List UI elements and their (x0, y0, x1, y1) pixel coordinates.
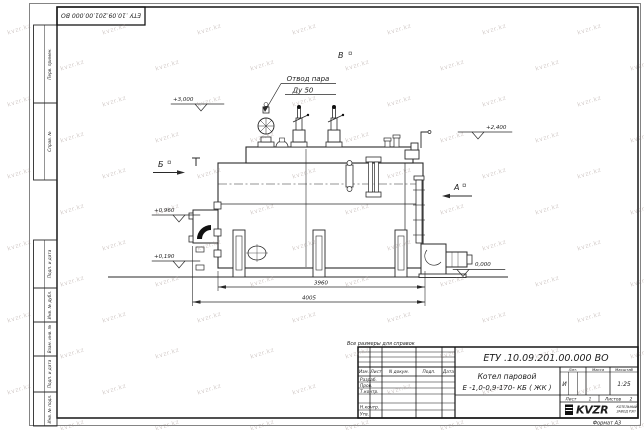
tb-row-prov: Пров. (360, 383, 373, 389)
tb-designation: ЕТУ .10.09.201.00.000 ВО (483, 353, 609, 364)
elev-0190-text: +0,190 (154, 254, 175, 260)
format-label: Формат А3 (593, 421, 621, 427)
field-inv-podl: Инв. № подл. (47, 395, 52, 424)
dim-3960-text: 3960 (314, 281, 328, 287)
tb-col-data: Дата (442, 369, 454, 375)
field-inv-dubl: Инв. № дубл. (47, 291, 52, 320)
company-logo: KVZR КОТЕЛЬНЫЙ ЗАВОД РЭП (565, 404, 638, 417)
tb-masshtab-header: Масштаб (615, 367, 634, 372)
drum-fittings (384, 135, 400, 147)
tb-sheet-value: 1 (589, 397, 592, 403)
boiler-view (108, 103, 508, 278)
nozzle-dome (276, 138, 288, 147)
logo-emblem-icon (565, 405, 573, 416)
view-b-arrow (177, 170, 185, 174)
callout-text-2: Ду 50 (292, 87, 314, 95)
tb-sheet-label: Лист (565, 397, 577, 403)
dim-4005-text: 4005 (302, 296, 316, 302)
tb-col-list: Лист (370, 369, 382, 375)
field-sprav-no: Справ. № (47, 131, 52, 152)
top-stamp: ЕТУ .10.09.201.00.000 ВО (57, 7, 145, 25)
frame-field-labels: Перв. примен. Справ. № Подп. и дата Инв.… (47, 48, 52, 423)
view-v-label: В (338, 51, 344, 60)
field-vzam-inv: Взам. инв. № (47, 324, 52, 353)
tb-col-ndokum: N докум. (389, 369, 409, 375)
view-a-label: А (453, 183, 459, 192)
safety-valve-2 (326, 105, 344, 147)
tb-massa-header: Масса (592, 367, 605, 372)
tb-row-tkontr: Т.контр. (360, 389, 379, 395)
elev-2400-text: +2,400 (486, 125, 507, 131)
field-podp-data-1: Подп. и дата (47, 249, 52, 278)
company-name-2: ЗАВОД РЭП (617, 410, 637, 414)
tb-col-podp: Подп. (422, 369, 435, 375)
tb-col-izm: Изм. (359, 369, 369, 375)
view-b-label: Б (158, 160, 164, 169)
tb-lit-value: И (562, 381, 567, 388)
elev-0000-text: 0,000 (475, 262, 491, 268)
logo-text: KVZR (576, 404, 608, 417)
blueprint-sheet: Перв. примен. Справ. № Подп. и дата Инв.… (0, 0, 644, 430)
field-podp-data-2: Подп. и дата (47, 359, 52, 388)
drain-valve-icon (192, 158, 200, 166)
drawing-svg: Перв. примен. Справ. № Подп. и дата Инв.… (0, 0, 644, 430)
tb-sheets-label: Листов (604, 397, 622, 403)
tb-lit-header: Лит. (568, 367, 578, 372)
tb-product-name-2: Е -1,0-0,9-170- КБ ( ЖК ) (462, 384, 551, 392)
tb-product-name-1: Котел паровой (478, 372, 537, 381)
company-name-1: КОТЕЛЬНЫЙ (617, 404, 638, 409)
top-stamp-text: ЕТУ .10.09.201.00.000 ВО (61, 12, 141, 19)
view-a-arrow (442, 194, 450, 198)
safety-valve-1 (291, 105, 309, 147)
frame-field-boxes (34, 25, 58, 426)
tb-sheets-value: 2 (630, 397, 633, 403)
tb-row-utv: Утв. (360, 412, 369, 418)
elev-0960-text: +0,960 (154, 208, 175, 214)
field-perv-primen: Перв. примен. (47, 48, 52, 79)
tb-row-nkontr: Н.контр. (360, 405, 379, 411)
water-gauge-1 (346, 161, 353, 192)
drum-elbow (405, 131, 431, 160)
blower-fan (419, 244, 472, 278)
tb-scale-value: 1:25 (617, 381, 631, 388)
elev-3000-text: +3,000 (173, 97, 194, 103)
reference-note: Все размеры для справок (347, 341, 415, 347)
callout-text-1: Отвод пара (287, 75, 330, 83)
steam-drum (246, 147, 413, 163)
tb-row-razrab: Разраб. (360, 377, 377, 383)
